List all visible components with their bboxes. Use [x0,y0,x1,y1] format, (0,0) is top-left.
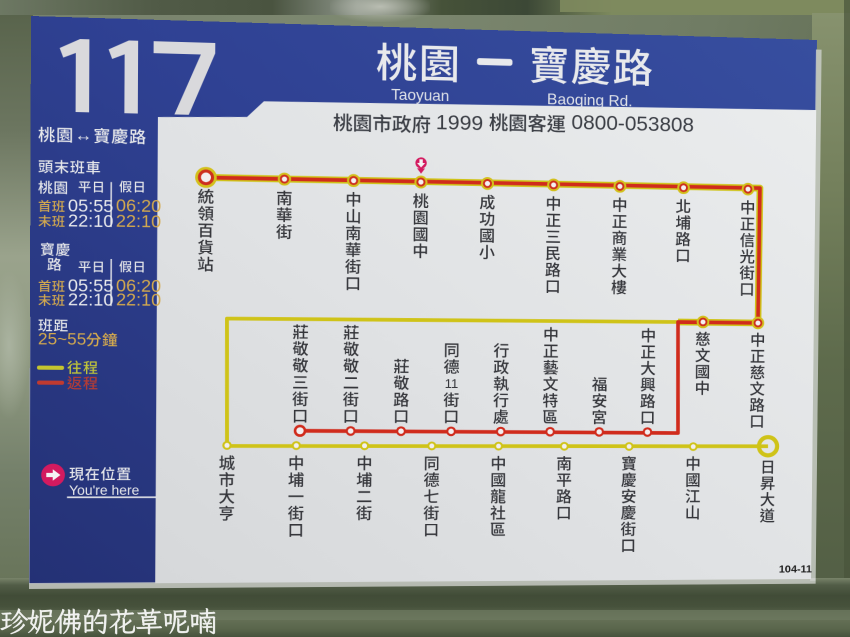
svg-text:11: 11 [445,376,459,390]
svg-text:22:10: 22:10 [116,290,161,310]
svg-text:1999: 1999 [436,110,484,135]
svg-text:↔: ↔ [75,125,93,145]
svg-text:22:10: 22:10 [116,211,161,231]
svg-text:You're here: You're here [69,482,140,497]
svg-text:22:10: 22:10 [68,290,114,310]
svg-text:22:10: 22:10 [68,211,114,231]
svg-text:Taoyuan: Taoyuan [391,87,449,105]
svg-text:25~55: 25~55 [38,330,86,349]
svg-text:0800-053808: 0800-053808 [571,110,694,136]
svg-text:104-11: 104-11 [779,562,813,575]
svg-text:Baoqing Rd.: Baoqing Rd. [547,91,633,110]
